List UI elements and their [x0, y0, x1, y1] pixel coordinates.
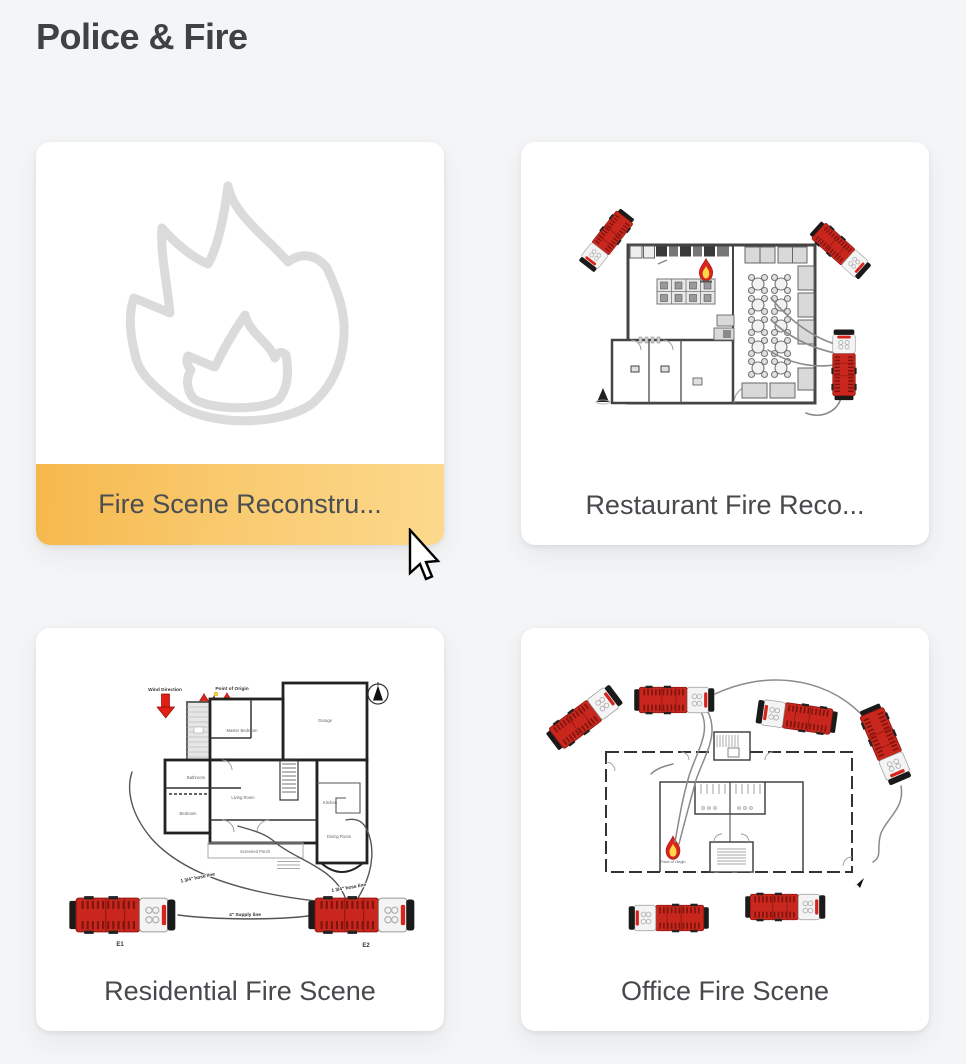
card-highlight-bar: Fire Scene Reconstru...	[36, 464, 444, 545]
office-walls	[606, 732, 852, 872]
fire-truck	[755, 697, 838, 736]
svg-text:Master Bedroom: Master Bedroom	[227, 728, 258, 733]
wind-direction-arrow: Wind Direction	[148, 687, 182, 718]
svg-text:Living Room: Living Room	[231, 795, 255, 800]
svg-text:Bathroom: Bathroom	[187, 775, 206, 780]
fire-truck	[856, 702, 914, 787]
restaurant-floorplan-thumbnail	[521, 142, 929, 472]
fire-truck	[745, 893, 825, 922]
svg-text:Point of Origin: Point of Origin	[660, 859, 685, 864]
svg-text:Point of Origin: Point of Origin	[215, 686, 248, 692]
scale-arrow-icon	[854, 878, 864, 888]
fire-engine-e1	[69, 896, 175, 934]
svg-text:Screened Porch: Screened Porch	[240, 849, 271, 854]
card-label: Fire Scene Reconstru...	[98, 489, 382, 520]
fire-truck	[629, 904, 709, 933]
template-card-office-fire-scene[interactable]: Point of Origin Office Fire Scene	[521, 628, 929, 1031]
svg-text:Bedroom: Bedroom	[180, 811, 198, 816]
north-indicator-icon	[596, 388, 610, 404]
template-card-residential-fire-scene[interactable]: Wind Direction Point of Origin	[36, 628, 444, 1031]
mouse-cursor	[408, 528, 452, 586]
residential-deck	[187, 702, 210, 762]
supply-line-label: 4" Supply line	[229, 912, 261, 918]
fire-engine-e2	[308, 896, 414, 934]
card-label: Residential Fire Scene	[46, 976, 434, 1007]
fire-truck	[807, 219, 873, 281]
svg-text:Kitchen: Kitchen	[323, 800, 338, 805]
svg-text:Dining Room: Dining Room	[327, 834, 352, 839]
fire-truck	[544, 682, 625, 753]
card-label: Office Fire Scene	[531, 976, 919, 1007]
template-card-fire-scene-reconstruction[interactable]: Fire Scene Reconstru...	[36, 142, 444, 545]
page-title: Police & Fire	[36, 16, 248, 58]
fire-truck	[831, 329, 856, 400]
template-card-restaurant-fire[interactable]: Restaurant Fire Reco...	[521, 142, 929, 545]
hose-line-label: 1 3/4" hose line	[180, 871, 216, 884]
office-floorplan-thumbnail: Point of Origin	[521, 628, 929, 958]
fire-truck	[634, 686, 714, 715]
svg-text:Garage: Garage	[318, 718, 333, 723]
svg-text:Wind Direction: Wind Direction	[148, 687, 182, 693]
engine1-label: E1	[116, 942, 124, 948]
north-compass-icon	[368, 682, 388, 704]
card-label: Restaurant Fire Reco...	[531, 490, 919, 521]
engine2-label: E2	[362, 943, 370, 949]
flame-outline-icon	[36, 142, 444, 472]
residential-floorplan-thumbnail: Wind Direction Point of Origin	[36, 628, 444, 958]
